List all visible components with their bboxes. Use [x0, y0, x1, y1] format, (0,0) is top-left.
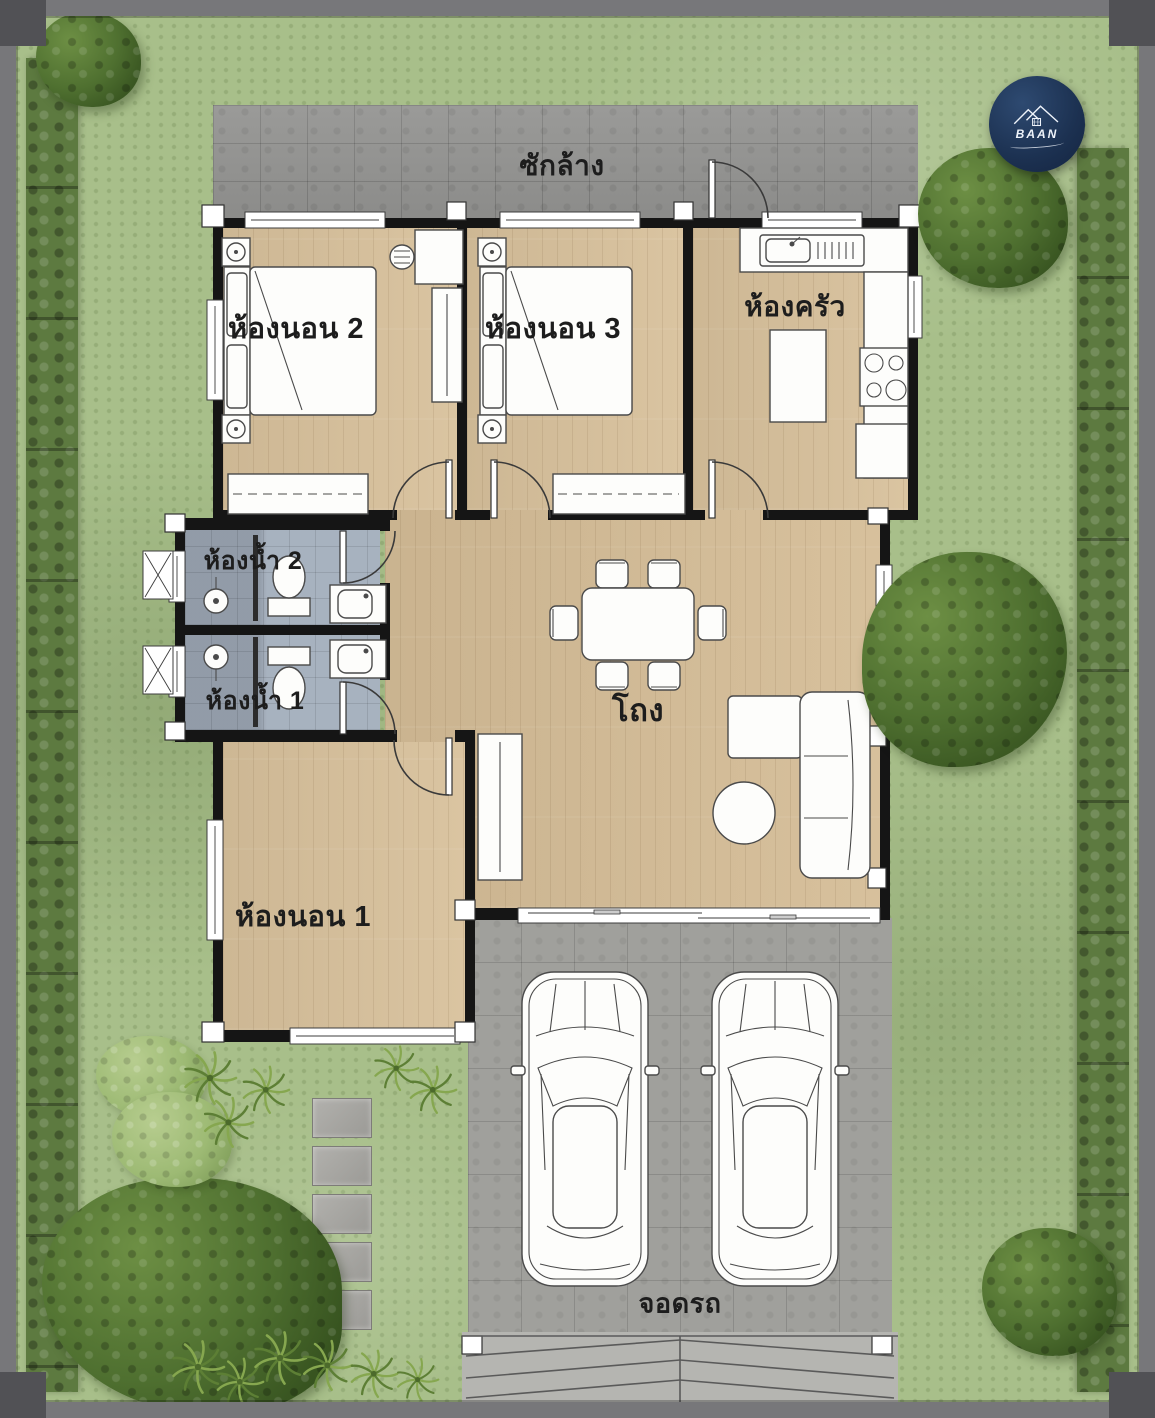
label-bedroom-3: ห้องนอน 3 [485, 305, 621, 351]
car-left [511, 972, 659, 1286]
stove-burners-icon [860, 348, 908, 406]
toilet-tank [268, 647, 310, 665]
kitchen-sink [766, 239, 810, 262]
car-right [701, 972, 849, 1286]
label-bathroom-2: ห้องน้ำ 2 [204, 541, 303, 581]
label-laundry: ซักล้าง [519, 144, 604, 188]
sliding-door [518, 908, 880, 923]
floor-plan: ซักล้าง ห้องนอน 2 ห้องนอน 3 ห้องครัว ห้อ… [0, 0, 1155, 1418]
label-parking: จอดรถ [639, 1282, 722, 1325]
brand-logo: BAAN [989, 76, 1085, 172]
label-bedroom-2: ห้องนอน 2 [228, 305, 364, 351]
label-kitchen: ห้องครัว [744, 285, 845, 329]
kitchen-fridge [856, 424, 908, 478]
driveway-markings [462, 1336, 898, 1404]
exterior-unit [143, 551, 173, 694]
desk-bedroom-2 [415, 230, 463, 284]
palm-plant-icon [392, 1354, 443, 1405]
living-set [713, 692, 870, 878]
label-hall: โถง [612, 685, 664, 735]
frame-corner [1109, 0, 1155, 46]
label-bedroom-1: ห้องนอน 1 [235, 893, 371, 939]
palm-plant-icon [198, 1092, 259, 1153]
sofa [800, 692, 870, 878]
dining-set [550, 560, 726, 690]
frame-corner [0, 1372, 46, 1418]
kitchen-island [770, 330, 826, 422]
house-roof-icon [1010, 101, 1064, 129]
frame-corner [0, 0, 46, 46]
toilet-tank [268, 598, 310, 616]
palm-plant-icon [404, 1061, 462, 1119]
label-bathroom-1: ห้องน้ำ 1 [206, 681, 305, 721]
coffee-table [713, 782, 775, 844]
frame-corner [1109, 1372, 1155, 1418]
logo-brand-text: BAAN [1016, 127, 1059, 141]
logo-flourish [1010, 139, 1064, 149]
dining-table [582, 588, 694, 660]
armchair [728, 696, 802, 758]
